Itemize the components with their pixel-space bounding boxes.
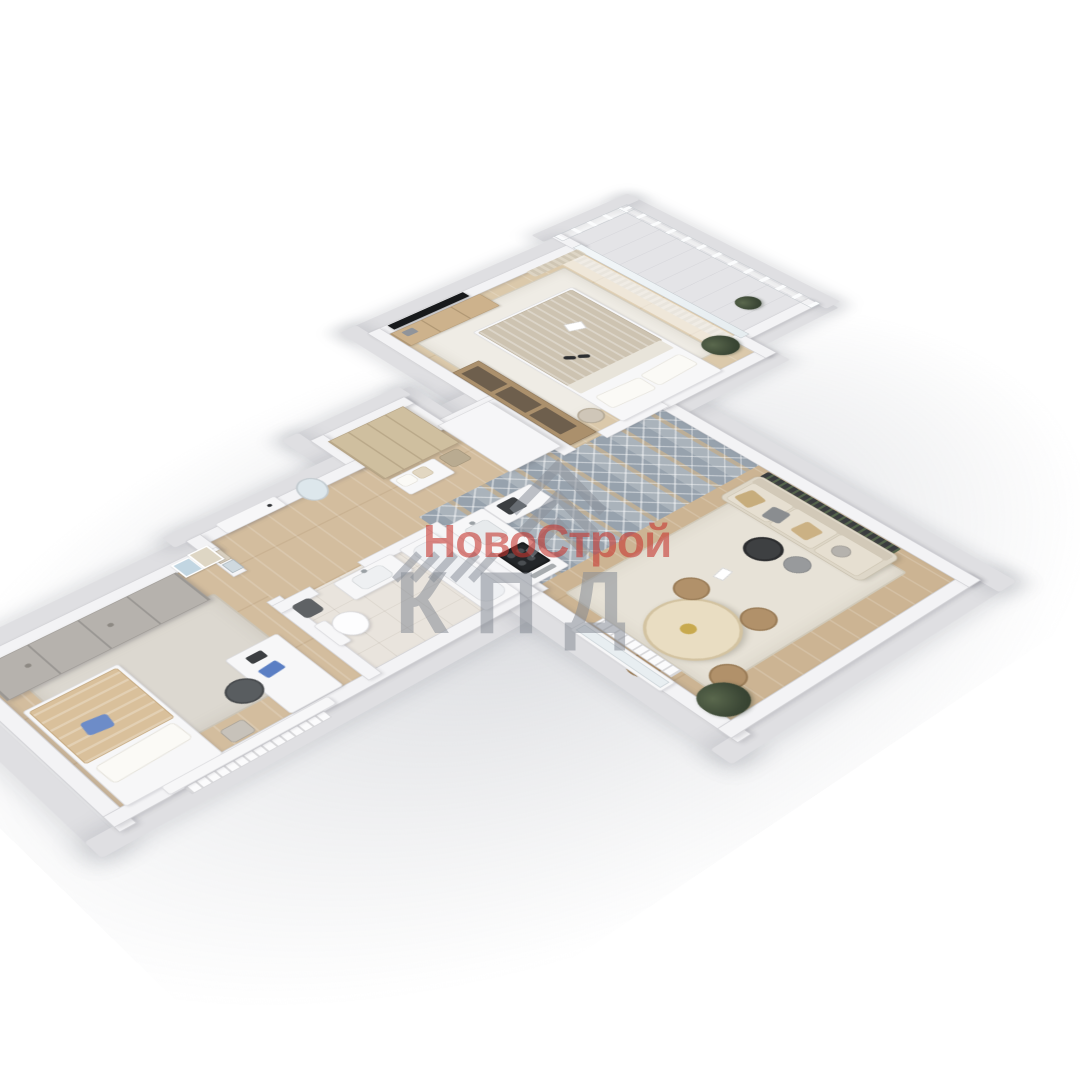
slippers: [563, 356, 576, 360]
apartment-floorplan: [0, 193, 1080, 1075]
floorplan-render-canvas: НовоСтрой КПД: [0, 0, 1080, 1080]
